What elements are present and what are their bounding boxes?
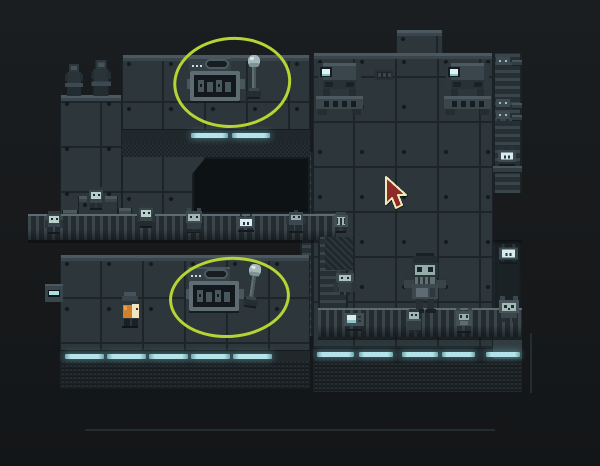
creature-robot-bridge[interactable] [286, 210, 306, 233]
light-strip-b1 [65, 354, 104, 359]
game-viewport[interactable] [0, 0, 600, 466]
ledge-right-4 [493, 166, 522, 173]
robot-big-sprite [402, 253, 448, 315]
light-strip-b2 [107, 354, 146, 359]
creature-bigcat[interactable] [497, 296, 521, 323]
creature-pale-1-sprite [44, 208, 64, 234]
creature-robe-sprite [404, 309, 424, 333]
statue-1[interactable] [62, 62, 86, 96]
creature-pale-2[interactable] [86, 184, 106, 210]
creature-crouch-2[interactable] [494, 98, 512, 109]
wall-switch-sprite [45, 284, 63, 302]
vent-panel [375, 70, 393, 80]
statue-1-sprite [62, 62, 86, 96]
creature-tv-ladder[interactable] [496, 147, 518, 166]
creature-cat-bridge-sprite [183, 207, 205, 233]
creature-hanging-sprite [333, 270, 357, 296]
creature-tv-right[interactable] [497, 244, 520, 264]
player-character-sprite [116, 291, 144, 329]
dither-lower-left [60, 361, 310, 389]
doorway [192, 157, 310, 214]
creature-radio[interactable] [342, 311, 366, 331]
creature-frog-sprite [454, 306, 474, 333]
light-strip-c1 [317, 352, 354, 357]
creature-bigcat-sprite [497, 296, 521, 323]
creature-crouch-3-sprite [494, 110, 512, 121]
creature-tv-right-sprite [497, 244, 520, 264]
mouse-cursor [383, 176, 407, 210]
ledge-right-1 [512, 60, 522, 66]
light-strip-c5 [486, 352, 520, 357]
wall-edge-line [530, 333, 532, 393]
creature-round-sprite [331, 210, 351, 233]
creature-pale-3-sprite [136, 202, 156, 228]
ledge-right-2 [512, 103, 522, 109]
creature-robot-bridge-sprite [286, 210, 306, 233]
pillar-hatch [325, 237, 353, 270]
light-strip-b3 [149, 354, 188, 359]
creature-cat-bridge[interactable] [183, 207, 205, 233]
mouse-cursor-sprite [383, 176, 407, 210]
light-strip-b5 [233, 354, 272, 359]
robot-big[interactable] [402, 253, 448, 315]
creature-crouch-1[interactable] [494, 56, 512, 67]
light-strip-a2 [232, 133, 270, 138]
creature-crouch-1-sprite [494, 56, 512, 67]
creature-robe[interactable] [404, 309, 424, 333]
creature-crouch-3[interactable] [494, 110, 512, 121]
creature-frog[interactable] [454, 306, 474, 333]
light-strip-c4 [442, 352, 475, 357]
creature-hanging[interactable] [333, 270, 357, 296]
fabricator-right[interactable] [444, 63, 491, 115]
creature-pale-3[interactable] [136, 202, 156, 228]
dither-upper [122, 143, 310, 157]
floor-hint-line [85, 429, 495, 431]
statue-2-sprite [88, 58, 114, 96]
fabricator-right-sprite [444, 63, 491, 115]
light-strip-c3 [402, 352, 438, 357]
ledge-right-3 [512, 115, 522, 121]
dither-lower-right [313, 359, 522, 392]
wall-switch[interactable] [45, 284, 63, 302]
creature-crouch-2-sprite [494, 98, 512, 109]
light-strip-a1 [191, 133, 228, 138]
player-character[interactable] [116, 291, 144, 329]
fabricator-left-sprite [316, 63, 363, 115]
light-strip-b4 [191, 354, 230, 359]
creature-tv-bridge[interactable] [235, 214, 257, 232]
creature-pale-2-sprite [86, 184, 106, 210]
creature-tv-bridge-sprite [235, 214, 257, 232]
creature-round[interactable] [331, 210, 351, 233]
vent-panel-sprite [375, 70, 393, 80]
creature-radio-sprite [342, 311, 366, 331]
statue-2[interactable] [88, 58, 114, 96]
creature-tv-ladder-sprite [496, 147, 518, 166]
fabricator-left[interactable] [316, 63, 363, 115]
light-strip-c2 [359, 352, 393, 357]
creature-pale-1[interactable] [44, 208, 64, 234]
